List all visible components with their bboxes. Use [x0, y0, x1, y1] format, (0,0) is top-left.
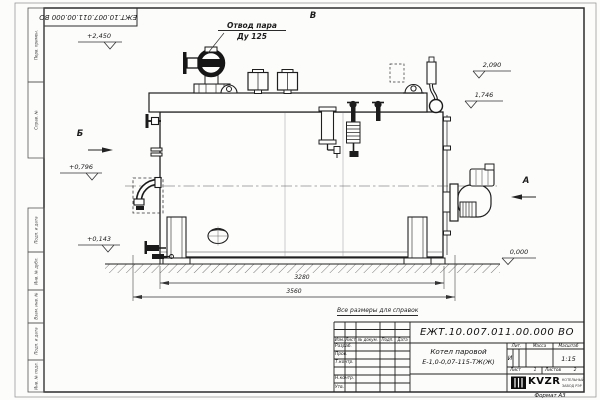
kvzr-logo-text: KVZR: [528, 375, 562, 389]
drawing-sheet: ЕЖТ.10.007.011.00.000 ВО Перв. примен. С…: [0, 0, 600, 400]
scale-header: Масштаб: [553, 343, 584, 349]
side-column-label-6: Подп. и дата: [34, 327, 39, 354]
sheet-label: Лист: [510, 367, 521, 374]
side-column-label-3: Подп. и дата: [34, 216, 39, 243]
elevation-label-1746: 1,746: [463, 92, 505, 99]
steam-valve: [183, 47, 230, 93]
support-right: [404, 217, 431, 264]
safety-valve-1: [248, 70, 268, 94]
left-top-valve: [146, 114, 162, 128]
elevation-label-ground: 0,000: [500, 249, 538, 256]
scale-value: 1:15: [553, 351, 584, 367]
row-label-razrab: Разраб.: [335, 343, 352, 351]
mass-header: Масса: [526, 343, 553, 349]
reference-note: Все размеры для справок: [337, 308, 418, 316]
doc-number-rotated: ЕЖТ.10.007.011.00.000 ВО: [44, 8, 137, 26]
row-label-prov: Пров.: [335, 351, 348, 359]
title-block-doc-number: ЕЖТ.10.007.011.00.000 ВО: [411, 322, 583, 343]
side-column-label-5: Взам. инв. №: [34, 292, 39, 319]
base-frame: [160, 258, 445, 264]
col-header-doc: № докум.: [356, 337, 380, 343]
title-block-product-code: Е-1,0-0,07-115-ТЖ(Ж): [410, 358, 507, 366]
logo-sub-line1: КОТЕЛЬНЫЙ: [562, 378, 584, 382]
feed-elbow: [133, 178, 163, 214]
view-label-a: А: [518, 177, 534, 186]
lit-header: Лит.: [507, 343, 526, 349]
steam-outlet-callout-line2: Ду 125: [218, 33, 286, 41]
row-label-nkontr: Н.контр.: [335, 375, 354, 383]
row-label-tkontr: Т.контр.: [335, 359, 354, 367]
row-label-utv: Утв.: [335, 383, 344, 392]
format-label: Формат А3: [510, 393, 590, 399]
elevation-label-0796: +0,796: [58, 164, 104, 171]
burner: [443, 164, 494, 221]
side-column-label-2: Справ. №: [34, 110, 39, 129]
safety-valve-2: [278, 70, 298, 94]
side-column-label-1: Перв. примен.: [34, 30, 39, 60]
sheet-value: 1: [530, 367, 540, 374]
side-column-label-7: Инв. № подл.: [34, 362, 39, 390]
title-block-product-name: Котел паровой: [410, 347, 507, 356]
view-label-v: В: [305, 12, 321, 21]
lit-value: И: [507, 351, 513, 367]
view-label-b: Б: [72, 130, 88, 139]
logo-sub-line2: ЗАВОД РЭР: [562, 384, 582, 388]
elevation-label-2450: +2,450: [76, 33, 122, 40]
side-column-label-4: Инв. № дубл.: [34, 257, 39, 284]
top-platform: [149, 93, 427, 112]
blowdown-ring: [427, 57, 443, 113]
dimension-label-outer: 3560: [272, 289, 316, 296]
sheets-value: 2: [570, 367, 580, 374]
sheets-label: Листов: [545, 367, 561, 374]
kvzr-logo-mark: [511, 377, 526, 390]
steam-outlet-callout-line1: Отвод пара: [218, 22, 286, 31]
col-header-date: Дата: [395, 337, 410, 343]
dimension-label-inner: 3280: [280, 275, 324, 282]
lifting-lug-2: [403, 85, 424, 94]
col-header-sign: Подп.: [380, 337, 395, 343]
elevation-label-2090: 2,090: [471, 62, 513, 69]
elevation-label-0143: +0,143: [76, 236, 122, 243]
ground-line: [105, 264, 500, 273]
dashed-hatch-opening: [390, 64, 404, 82]
